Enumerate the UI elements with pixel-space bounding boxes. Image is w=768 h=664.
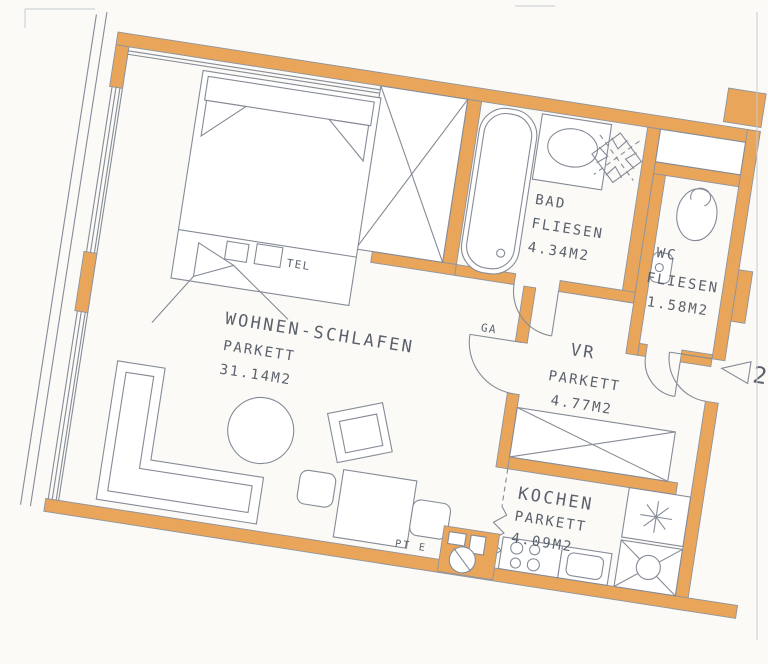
scan-artifacts: [0, 0, 768, 664]
floor-plan-scan: TEL: [0, 0, 768, 664]
